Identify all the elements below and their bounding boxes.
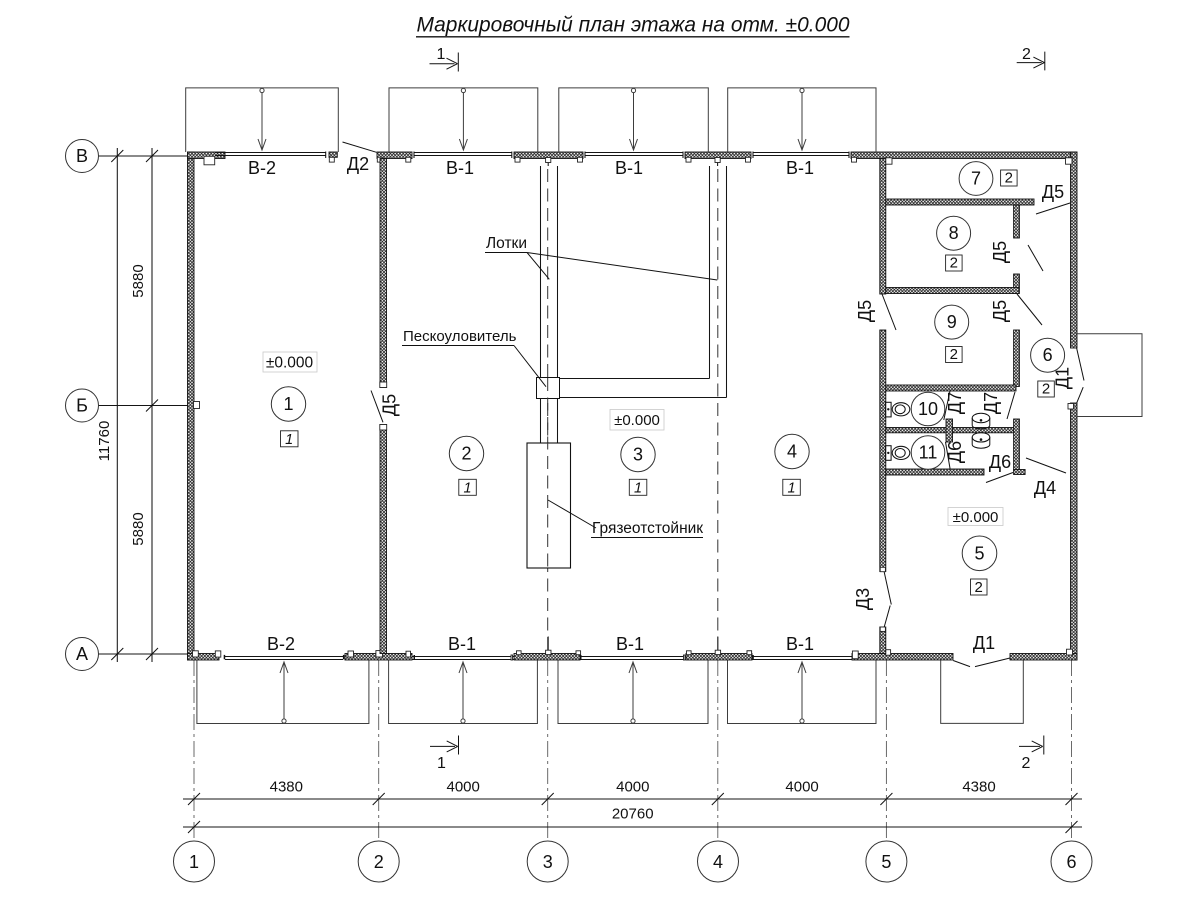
svg-text:4000: 4000 [447,779,480,796]
svg-text:5880: 5880 [130,264,147,297]
svg-text:4000: 4000 [616,779,649,796]
svg-text:Д5: Д5 [990,241,1010,263]
svg-text:5880: 5880 [130,512,147,545]
svg-text:4: 4 [787,442,797,462]
svg-text:3: 3 [633,445,643,465]
svg-text:2: 2 [950,255,958,272]
svg-text:Д5: Д5 [855,300,875,322]
svg-text:Д4: Д4 [1034,478,1056,498]
svg-text:4380: 4380 [270,779,303,796]
svg-text:Грязеотстойник: Грязеотстойник [592,520,703,537]
svg-text:2: 2 [1042,381,1050,398]
svg-text:Д1: Д1 [973,633,995,653]
svg-text:2: 2 [950,346,958,363]
svg-text:11760: 11760 [96,421,113,462]
svg-text:8: 8 [949,223,959,243]
svg-text:1: 1 [437,755,446,772]
svg-text:4: 4 [713,852,723,872]
svg-text:1: 1 [634,480,642,496]
svg-text:4000: 4000 [785,779,818,796]
svg-text:В-1: В-1 [446,158,474,178]
svg-text:1: 1 [437,46,446,63]
svg-text:А: А [76,644,88,664]
svg-text:1: 1 [787,480,795,496]
svg-text:В-2: В-2 [267,634,295,654]
svg-text:2: 2 [374,852,384,872]
svg-text:1: 1 [463,480,471,496]
svg-text:В: В [76,146,88,166]
svg-text:Д5: Д5 [1042,182,1064,202]
svg-text:1: 1 [189,852,199,872]
svg-text:6: 6 [1043,345,1053,365]
svg-text:5: 5 [974,543,984,563]
svg-text:2: 2 [461,444,471,464]
svg-text:20760: 20760 [612,806,654,823]
svg-text:В-1: В-1 [786,158,814,178]
svg-text:Д6: Д6 [945,441,965,463]
svg-text:±0.000: ±0.000 [266,355,314,372]
svg-text:Лотки: Лотки [486,235,527,252]
svg-text:Д7: Д7 [981,392,1001,414]
svg-text:Д6: Д6 [989,452,1011,472]
svg-text:±0.000: ±0.000 [953,509,999,526]
svg-text:В-2: В-2 [248,158,276,178]
svg-text:Д3: Д3 [853,588,873,610]
svg-text:Маркировочный план этажа на от: Маркировочный план этажа на отм. ±0.000 [417,14,850,37]
svg-text:7: 7 [971,169,981,189]
svg-text:10: 10 [918,399,938,419]
svg-text:Д7: Д7 [945,392,965,414]
svg-text:11: 11 [919,443,938,463]
svg-text:3: 3 [543,852,553,872]
svg-text:В-1: В-1 [615,158,643,178]
svg-text:Пескоуловитель: Пескоуловитель [403,328,517,345]
svg-text:2: 2 [1022,46,1031,63]
svg-text:±0.000: ±0.000 [614,412,660,429]
svg-text:Д5: Д5 [380,394,400,416]
svg-text:2: 2 [1022,755,1031,772]
svg-text:9: 9 [947,312,957,332]
svg-text:6: 6 [1066,852,1076,872]
svg-text:В-1: В-1 [448,634,476,654]
svg-text:В-1: В-1 [616,634,644,654]
svg-text:Д5: Д5 [990,300,1010,322]
svg-text:1: 1 [285,432,293,448]
svg-text:4380: 4380 [962,779,995,796]
svg-text:2: 2 [975,579,983,596]
svg-text:В-1: В-1 [786,634,814,654]
svg-text:5: 5 [881,852,891,872]
svg-text:1: 1 [283,394,293,414]
svg-text:Д2: Д2 [347,154,369,174]
svg-text:Б: Б [76,396,88,416]
svg-text:2: 2 [1005,170,1013,187]
